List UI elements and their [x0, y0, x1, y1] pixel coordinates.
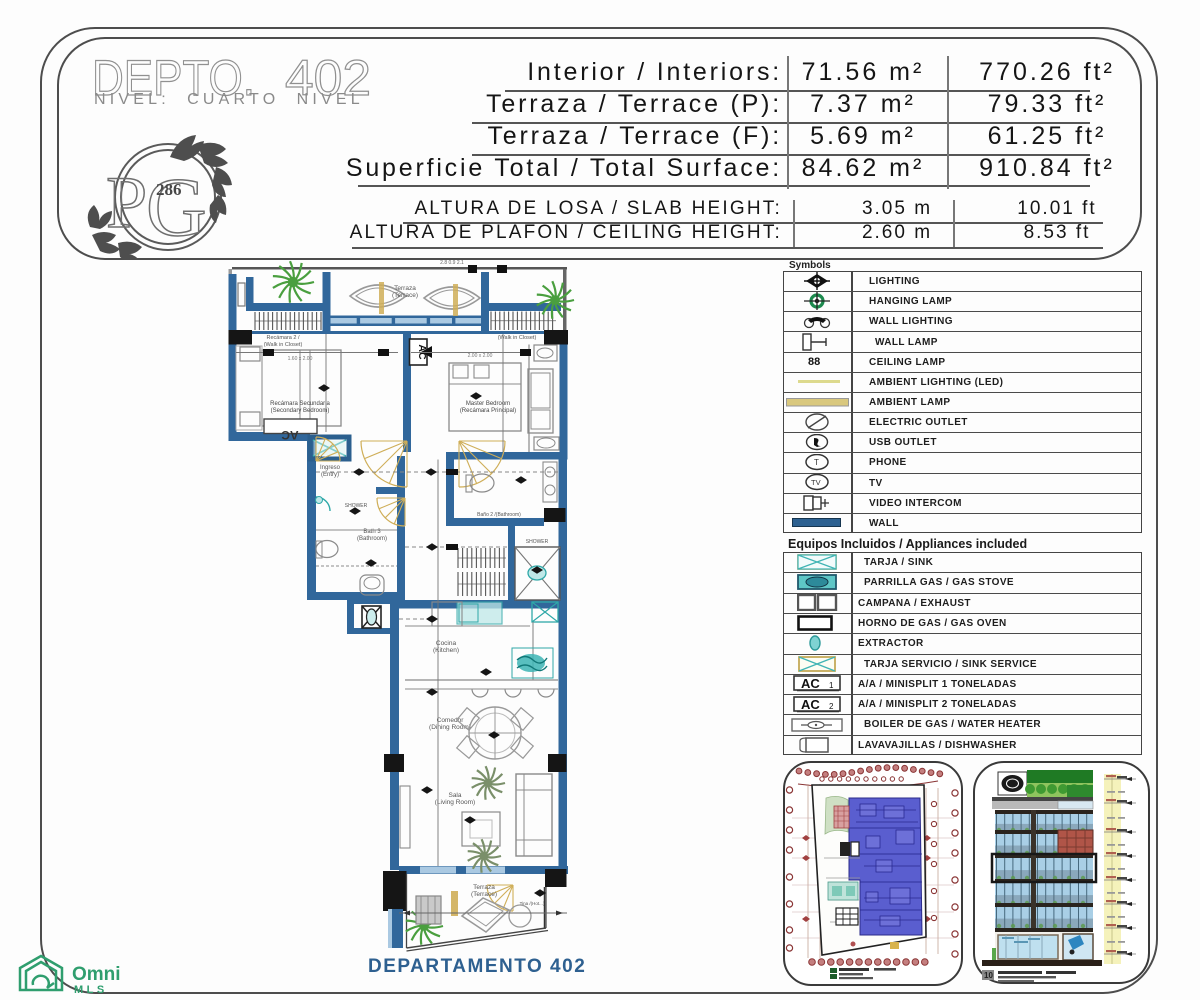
- svg-text:AC: AC: [801, 697, 820, 712]
- svg-text:Cocina: Cocina: [436, 640, 457, 647]
- svg-text:1.60 x 2.00: 1.60 x 2.00: [288, 356, 313, 362]
- svg-text:(Kitchen): (Kitchen): [433, 647, 459, 654]
- svg-text:(Recámara Principal): (Recámara Principal): [460, 408, 516, 414]
- svg-text:(Walk in Closet): (Walk in Closet): [498, 335, 537, 341]
- svg-text:Baño 2 /(Bathroom): Baño 2 /(Bathroom): [477, 512, 521, 518]
- svg-text:10: 10: [984, 971, 993, 980]
- svg-text:2: 2: [829, 702, 834, 711]
- svg-text:(Terrace): (Terrace): [471, 891, 497, 898]
- svg-text:88: 88: [808, 356, 820, 368]
- svg-text:AC: AC: [281, 428, 299, 442]
- svg-text:Recámara Secundaria: Recámara Secundaria: [270, 401, 330, 407]
- svg-text:(Dining Room): (Dining Room): [429, 724, 471, 731]
- svg-text:SHOWER: SHOWER: [526, 539, 549, 545]
- svg-text:Ingreso: Ingreso: [320, 465, 341, 471]
- svg-text:TV: TV: [811, 478, 821, 487]
- svg-text:2.00 x 2.00: 2.00 x 2.00: [468, 353, 493, 359]
- svg-text:Terraza: Terraza: [473, 884, 495, 891]
- svg-text:Terraza: Terraza: [394, 285, 416, 292]
- svg-text:Sala: Sala: [448, 792, 461, 799]
- svg-text:(Walk in Closet): (Walk in Closet): [264, 342, 303, 348]
- svg-text:T: T: [814, 458, 819, 467]
- svg-text:Master Bedroom: Master Bedroom: [466, 401, 510, 407]
- svg-text:MLS: MLS: [74, 984, 108, 995]
- svg-text:(Bathroom): (Bathroom): [357, 536, 387, 542]
- svg-text:(Entry): (Entry): [321, 472, 339, 478]
- svg-text:P: P: [106, 162, 147, 244]
- svg-text:(Secondary Bedroom): (Secondary Bedroom): [271, 408, 330, 414]
- svg-text:AC: AC: [801, 676, 820, 691]
- svg-text:(Terrace): (Terrace): [392, 292, 418, 299]
- svg-text:1: 1: [829, 681, 834, 690]
- svg-text:2.8 0.9 2.1: 2.8 0.9 2.1: [440, 260, 464, 266]
- svg-text:(Living Room): (Living Room): [435, 799, 475, 806]
- svg-text:Recámara 2 /: Recámara 2 /: [266, 335, 299, 341]
- svg-text:Omni: Omni: [72, 964, 121, 985]
